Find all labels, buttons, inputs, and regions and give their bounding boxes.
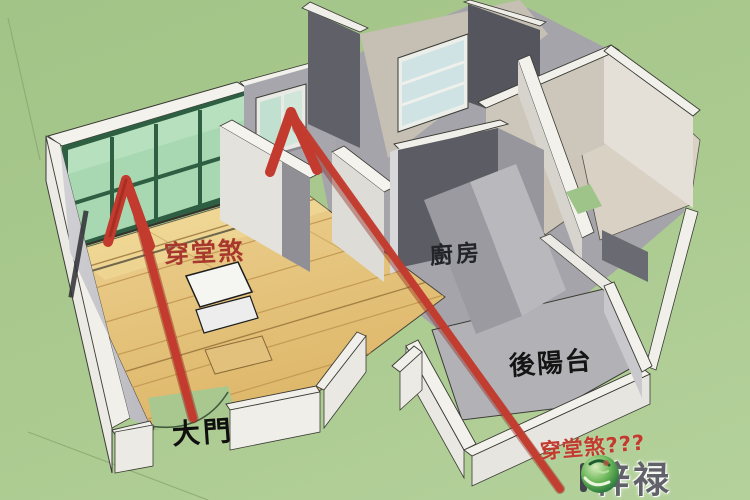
watermark: 梓禄 [578,451,672,500]
label-back-balcony: 後陽台 [508,348,594,380]
label-kitchen: 廚房 [429,242,482,269]
label-main-door: 大門 [171,417,235,449]
label-hall-sha: 穿堂煞 [163,238,245,267]
floorplan-scene: 穿堂煞 廚房 後陽台 大門 穿堂煞??? 梓禄 [0,0,750,500]
leaf-globe-logo-icon [578,451,622,495]
floorplan-drawing [0,0,750,500]
